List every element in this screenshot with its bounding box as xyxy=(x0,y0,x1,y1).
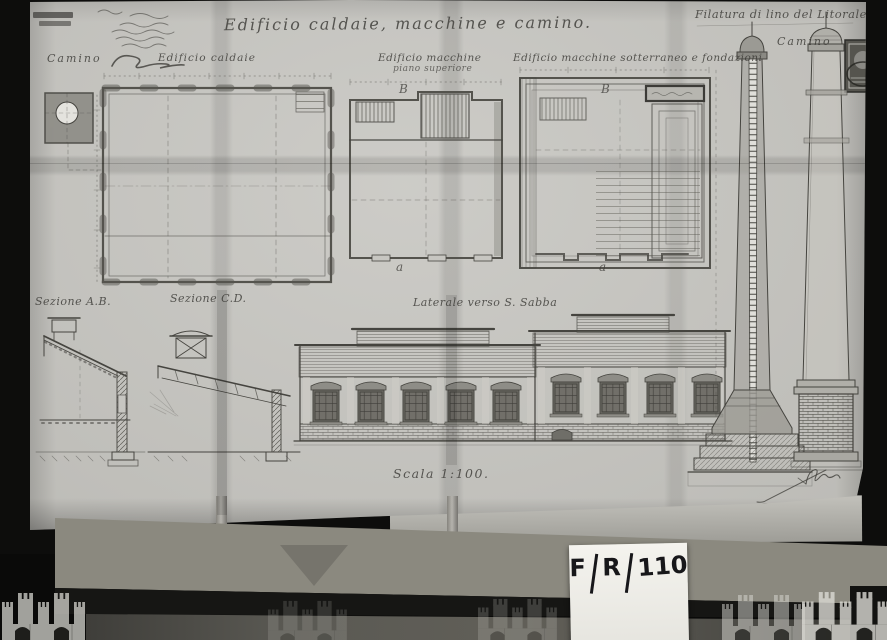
card-separator xyxy=(590,554,598,594)
dark-corner xyxy=(850,586,887,640)
label-edificio-sotterraneo: Edificio macchine sotterraneo e fondazio… xyxy=(513,52,762,64)
stand-post-right xyxy=(447,496,458,536)
archive-reference-card: F R 110 xyxy=(569,543,689,640)
label-sezione-ab: Sezione A.B. xyxy=(35,295,111,308)
card-separator xyxy=(625,553,633,593)
drawing-paper xyxy=(30,0,866,532)
label-sezione-cd: Sezione C.D. xyxy=(170,292,247,305)
header-right-label: Filatura di lino del Litorale xyxy=(695,7,867,21)
section-marker-b-right: B xyxy=(601,82,610,96)
label-piano-superiore: piano superiore xyxy=(393,64,472,74)
card-field-2: R xyxy=(602,553,621,581)
card-field-1: F xyxy=(569,554,586,582)
section-marker-a-right: a xyxy=(599,260,607,274)
section-marker-b-left: B xyxy=(399,82,408,96)
card-number: 110 xyxy=(636,550,688,582)
label-edificio-caldaie: Edificio caldaie xyxy=(158,52,256,64)
label-scala: Scala 1:100. xyxy=(393,466,489,481)
label-camino-right: Camino xyxy=(777,35,832,48)
label-edificio-macchine: Edificio macchine xyxy=(378,52,481,64)
drawing-title: Edificio caldaie, macchine e camino. xyxy=(224,13,592,35)
label-camino-left: Camino xyxy=(47,52,102,65)
label-laterale: Laterale verso S. Sabba xyxy=(413,296,557,309)
archival-photo-scene: Edificio caldaie, macchine e camino. Fil… xyxy=(0,0,887,640)
section-marker-a-left: a xyxy=(396,260,404,274)
